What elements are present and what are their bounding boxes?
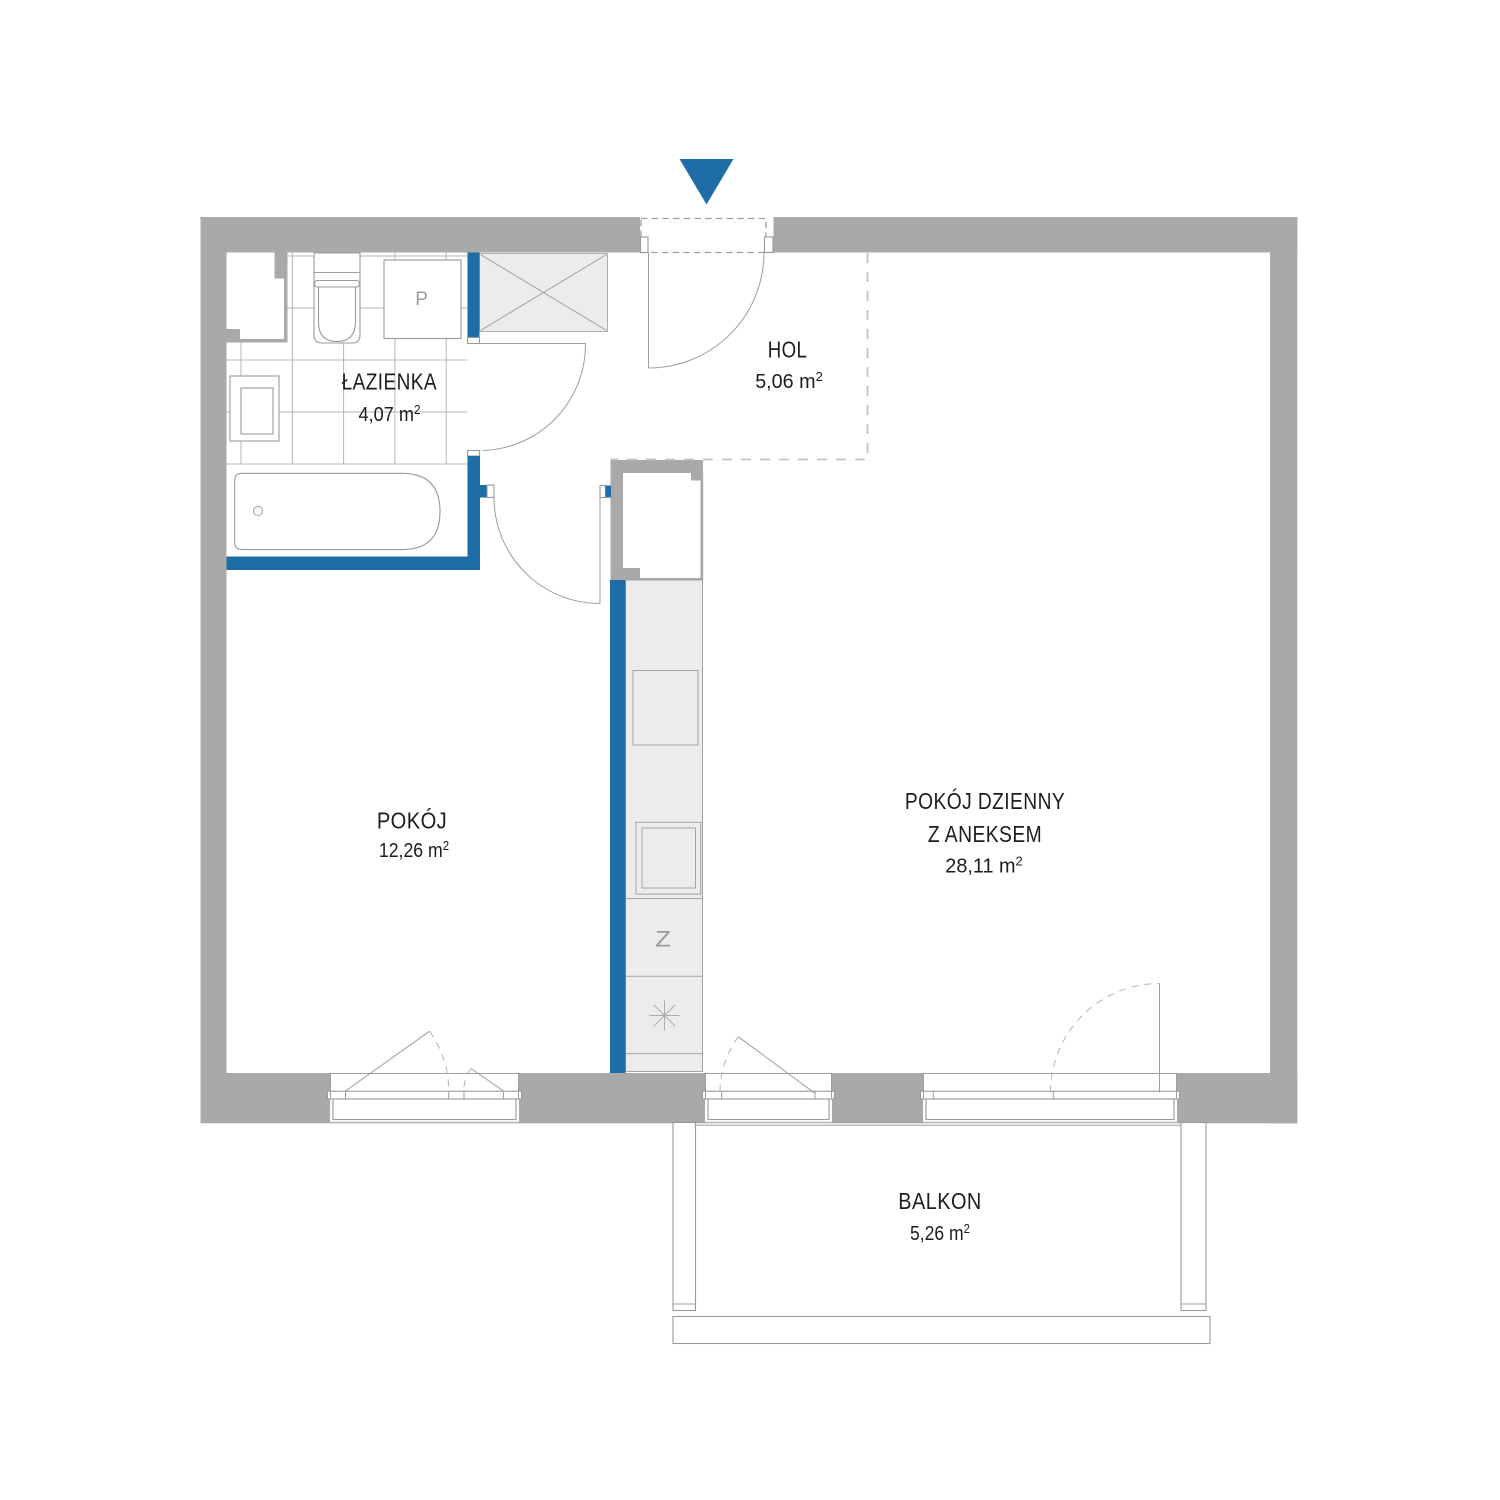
svg-text:5,26 m2: 5,26 m2 <box>910 1221 970 1245</box>
svg-text:HOL: HOL <box>768 337 808 363</box>
svg-text:4,07 m2: 4,07 m2 <box>359 402 421 426</box>
svg-text:12,26 m2: 12,26 m2 <box>379 838 449 862</box>
svg-text:POKÓJ DZIENNY: POKÓJ DZIENNY <box>905 788 1065 814</box>
svg-text:Z: Z <box>655 927 671 952</box>
svg-text:28,11 m2: 28,11 m2 <box>945 854 1022 878</box>
svg-text:BALKON: BALKON <box>898 1188 981 1214</box>
svg-text:POKÓJ: POKÓJ <box>377 808 447 834</box>
svg-text:5,06 m2: 5,06 m2 <box>755 369 823 393</box>
svg-text:ŁAZIENKA: ŁAZIENKA <box>342 369 437 395</box>
svg-text:P: P <box>415 289 428 310</box>
svg-text:Z ANEKSEM: Z ANEKSEM <box>928 821 1042 847</box>
